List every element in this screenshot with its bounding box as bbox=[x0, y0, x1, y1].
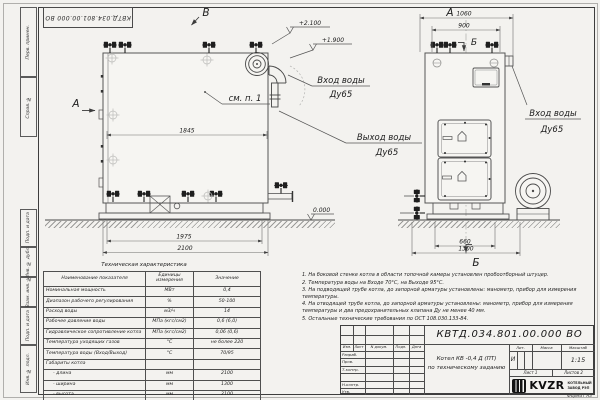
cell-name: Расход воды bbox=[44, 307, 146, 317]
company-logo: KVZR КОТЕЛЬНЫЙ ЗАВОД РЭП bbox=[509, 376, 595, 395]
dim-900: 900 bbox=[458, 23, 470, 30]
dim-1975: 1975 bbox=[176, 234, 191, 241]
section-marker-b-bottom: Б bbox=[472, 257, 479, 269]
tb-hdr-ndoc: N докум. bbox=[365, 344, 393, 351]
cell-unit: мм bbox=[146, 380, 194, 390]
note-2: 2. Температура воды на Входе 70°С, на Вы… bbox=[302, 280, 591, 287]
elevation-2100: +2.100 bbox=[299, 20, 321, 27]
note-5: 5. Остальные технические требования по О… bbox=[302, 316, 591, 323]
label-water-inlet-front: Вход воды bbox=[529, 109, 577, 119]
tb-row-nkontr: Н.контр. bbox=[342, 381, 365, 388]
tb-row-prov: Пров. bbox=[342, 358, 365, 366]
technical-notes: 1. На боковой стенке котла в области топ… bbox=[302, 272, 591, 323]
cell-unit: мм bbox=[146, 370, 194, 380]
tb-name-line1: Котел КВ -0,4 Д (ПТ) bbox=[424, 356, 509, 362]
section-marker-b-top: Б bbox=[471, 38, 477, 48]
cell-name: Гидравлическое сопротивление котла bbox=[44, 328, 146, 338]
tb-lit-value: И bbox=[509, 351, 517, 369]
cell-unit: мм bbox=[146, 390, 194, 400]
title-block: Изм. Лист N докум. Подп. Дата Разраб. Пр… bbox=[340, 325, 594, 394]
tb-hdr-podp: Подп. bbox=[393, 344, 409, 351]
view-title-a: А bbox=[445, 7, 453, 19]
cell-value: 0,06 (0,6) bbox=[194, 328, 261, 338]
tb-row-tkontr: Т.контр. bbox=[342, 366, 365, 373]
label-see-item-1: см. п. 1 bbox=[229, 94, 262, 104]
cell-unit: °С bbox=[146, 338, 194, 348]
tb-row-razrab: Разраб. bbox=[342, 351, 365, 358]
cell-value: 1300 bbox=[194, 380, 261, 390]
col-unit: Единицы измерения bbox=[146, 272, 194, 287]
label-dn65-outlet: Ду65 bbox=[375, 148, 399, 158]
cell-name: Диапазон рабочего регулирования bbox=[44, 297, 146, 307]
cell-name: Габариты котла bbox=[44, 359, 146, 369]
table-row: Гидравлическое сопротивление котлаМПа (к… bbox=[44, 328, 261, 338]
cell-unit: % bbox=[146, 297, 194, 307]
tb-massa-label: Масса bbox=[532, 344, 561, 351]
label-dn65-inlet-side: Ду65 bbox=[329, 90, 353, 100]
view-marker-v: В bbox=[202, 7, 209, 19]
label-water-outlet: Выход воды bbox=[357, 133, 411, 143]
tech-table: Наименование показателя Единицы измерени… bbox=[43, 271, 261, 400]
kvzr-logo-text: KVZR bbox=[529, 379, 564, 392]
cell-name: Температура уходящих газов bbox=[44, 338, 146, 348]
col-value: Значение bbox=[194, 272, 261, 287]
tb-hdr-list: Лист bbox=[353, 344, 365, 351]
cell-value: не более 220 bbox=[194, 338, 261, 348]
cell-value: 2100 bbox=[194, 390, 261, 400]
cell-unit bbox=[146, 359, 194, 369]
logo-sub-line1: КОТЕЛЬНЫЙ bbox=[567, 381, 591, 385]
table-row: Габариты котла bbox=[44, 359, 261, 369]
tb-sheet: Лист 1 bbox=[509, 369, 552, 376]
tb-name: Котел КВ -0,4 Д (ПТ) по техническому зад… bbox=[424, 347, 509, 395]
table-row: Рабочее давление водыМПа (кгс/см2)0,6 (6… bbox=[44, 318, 261, 328]
col-name: Наименование показателя bbox=[44, 272, 146, 287]
kvzr-logo-subtext: КОТЕЛЬНЫЙ ЗАВОД РЭП bbox=[567, 381, 591, 390]
dim-1845: 1845 bbox=[179, 128, 194, 135]
logo-sub-line2: ЗАВОД РЭП bbox=[567, 386, 591, 390]
tb-hdr-data: Дата bbox=[409, 344, 424, 351]
tech-characteristics: Техническая характеристика Наименование … bbox=[43, 262, 245, 400]
cell-value: 2100 bbox=[194, 370, 261, 380]
format-label: Формат А3 bbox=[520, 394, 592, 399]
tb-doc-number: КВТД.034.801.00.000 ВО bbox=[424, 326, 595, 344]
cell-value: 14 bbox=[194, 307, 261, 317]
dim-2100: 2100 bbox=[177, 245, 192, 252]
cell-name: - ширина bbox=[44, 380, 146, 390]
note-1: 1. На боковой стенке котла в области топ… bbox=[302, 272, 591, 279]
cell-name: - высота bbox=[44, 390, 146, 400]
boiler-front-view bbox=[398, 20, 560, 254]
cell-unit: МПа (кгс/см2) bbox=[146, 328, 194, 338]
tech-table-title: Техническая характеристика bbox=[43, 262, 245, 271]
cell-value: 70/95 bbox=[194, 349, 261, 359]
table-row: Номинальная мощностьМВт0,4 bbox=[44, 287, 261, 297]
cell-value: 0,6 (6,0) bbox=[194, 318, 261, 328]
cell-unit: °С bbox=[146, 349, 194, 359]
table-row: - длинамм2100 bbox=[44, 370, 261, 380]
elevation-marks bbox=[272, 27, 352, 220]
dim-1060: 1060 bbox=[456, 11, 471, 18]
cell-unit: м3/ч bbox=[146, 307, 194, 317]
table-row: - ширинамм1300 bbox=[44, 380, 261, 390]
cell-unit: МПа (кгс/см2) bbox=[146, 318, 194, 328]
cell-name: - длина bbox=[44, 370, 146, 380]
cell-name: Температура воды (Вход/Выход) bbox=[44, 349, 146, 359]
elevation-zero: 0.000 bbox=[313, 207, 330, 214]
tb-scale-label: Масштаб bbox=[561, 344, 595, 351]
cell-value: 50-100 bbox=[194, 297, 261, 307]
tb-name-line2: по техническому заданию bbox=[424, 365, 509, 371]
tb-hdr-izm: Изм. bbox=[341, 344, 353, 351]
label-dn65-inlet-front: Ду65 bbox=[540, 125, 564, 135]
note-4: 4. На отводящей трубе котла, до запорной… bbox=[302, 301, 591, 314]
table-row: Расход водым3/ч14 bbox=[44, 307, 261, 317]
cell-value: 0,4 bbox=[194, 287, 261, 297]
kvzr-logo-icon bbox=[512, 379, 526, 393]
cell-name: Номинальная мощность bbox=[44, 287, 146, 297]
table-row: - высотамм2100 bbox=[44, 390, 261, 400]
table-row: Диапазон рабочего регулирования%50-100 bbox=[44, 297, 261, 307]
view-marker-a: А bbox=[71, 98, 79, 110]
cell-unit: МВт bbox=[146, 287, 194, 297]
tech-table-header: Наименование показателя Единицы измерени… bbox=[44, 272, 261, 287]
label-water-inlet-side: Вход воды bbox=[317, 76, 365, 86]
table-row: Температура воды (Вход/Выход)°С70/95 bbox=[44, 349, 261, 359]
tb-sheets: Листов 2 bbox=[552, 369, 595, 376]
tb-lit-label: Лит. bbox=[509, 344, 532, 351]
elevation-1900: +1.900 bbox=[322, 37, 344, 44]
drawing-sheet: Перв. примен. Справ. № Подп. и дата Инв.… bbox=[0, 0, 600, 400]
cell-name: Рабочее давление воды bbox=[44, 318, 146, 328]
tb-row-utv: Утв. bbox=[342, 388, 365, 395]
tb-scale-value: 1:15 bbox=[561, 351, 595, 369]
cell-value bbox=[194, 359, 261, 369]
table-row: Температура уходящих газов°Сне более 220 bbox=[44, 338, 261, 348]
note-3: 3. На подводящей трубе котла, до запорно… bbox=[302, 287, 591, 300]
